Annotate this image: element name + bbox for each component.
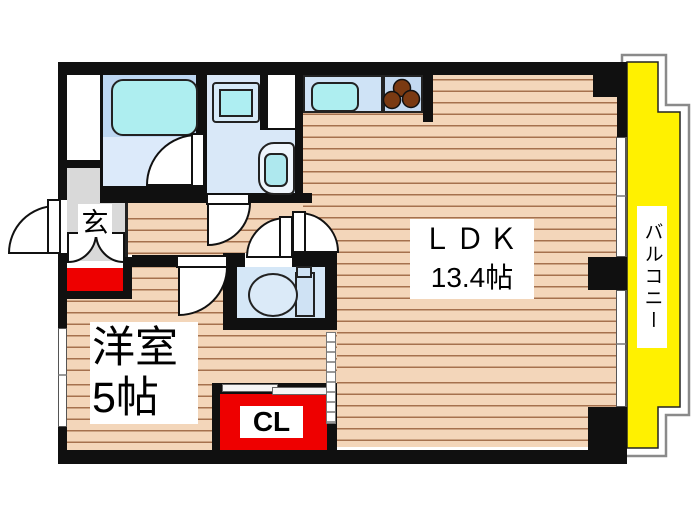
western-room-name: 洋室 xyxy=(92,323,178,373)
ldk-door-leaf xyxy=(293,212,305,252)
bathroom-door-leaf xyxy=(192,134,204,186)
floor-plan: 玄 ＬＤＫ 13.4帖 洋室 5帖 CL バルコニー xyxy=(0,0,700,525)
closet-label: CL xyxy=(240,406,303,438)
ldk-label: ＬＤＫ 13.4帖 xyxy=(410,219,534,299)
doors-layer xyxy=(0,0,700,525)
western-room-size: 5帖 xyxy=(92,373,159,423)
balcony-label: バルコニー xyxy=(637,206,667,348)
toilet-door-leaf xyxy=(280,217,292,257)
washroom-door-leaf xyxy=(207,194,249,204)
western-room-door-leaf xyxy=(177,256,227,267)
ldk-size: 13.4帖 xyxy=(431,259,514,297)
stove-burner-3 xyxy=(403,91,420,108)
washroom-door-arc xyxy=(208,203,250,245)
western-room-door-arc xyxy=(179,267,227,315)
entrance-label: 玄 xyxy=(78,204,112,237)
stove-burner-2 xyxy=(384,92,401,109)
bathroom-door-arc xyxy=(147,135,197,185)
entrance-door-leaf xyxy=(48,200,60,253)
western-room-label: 洋室 5帖 xyxy=(90,322,198,424)
ldk-name: ＬＤＫ xyxy=(422,221,521,259)
